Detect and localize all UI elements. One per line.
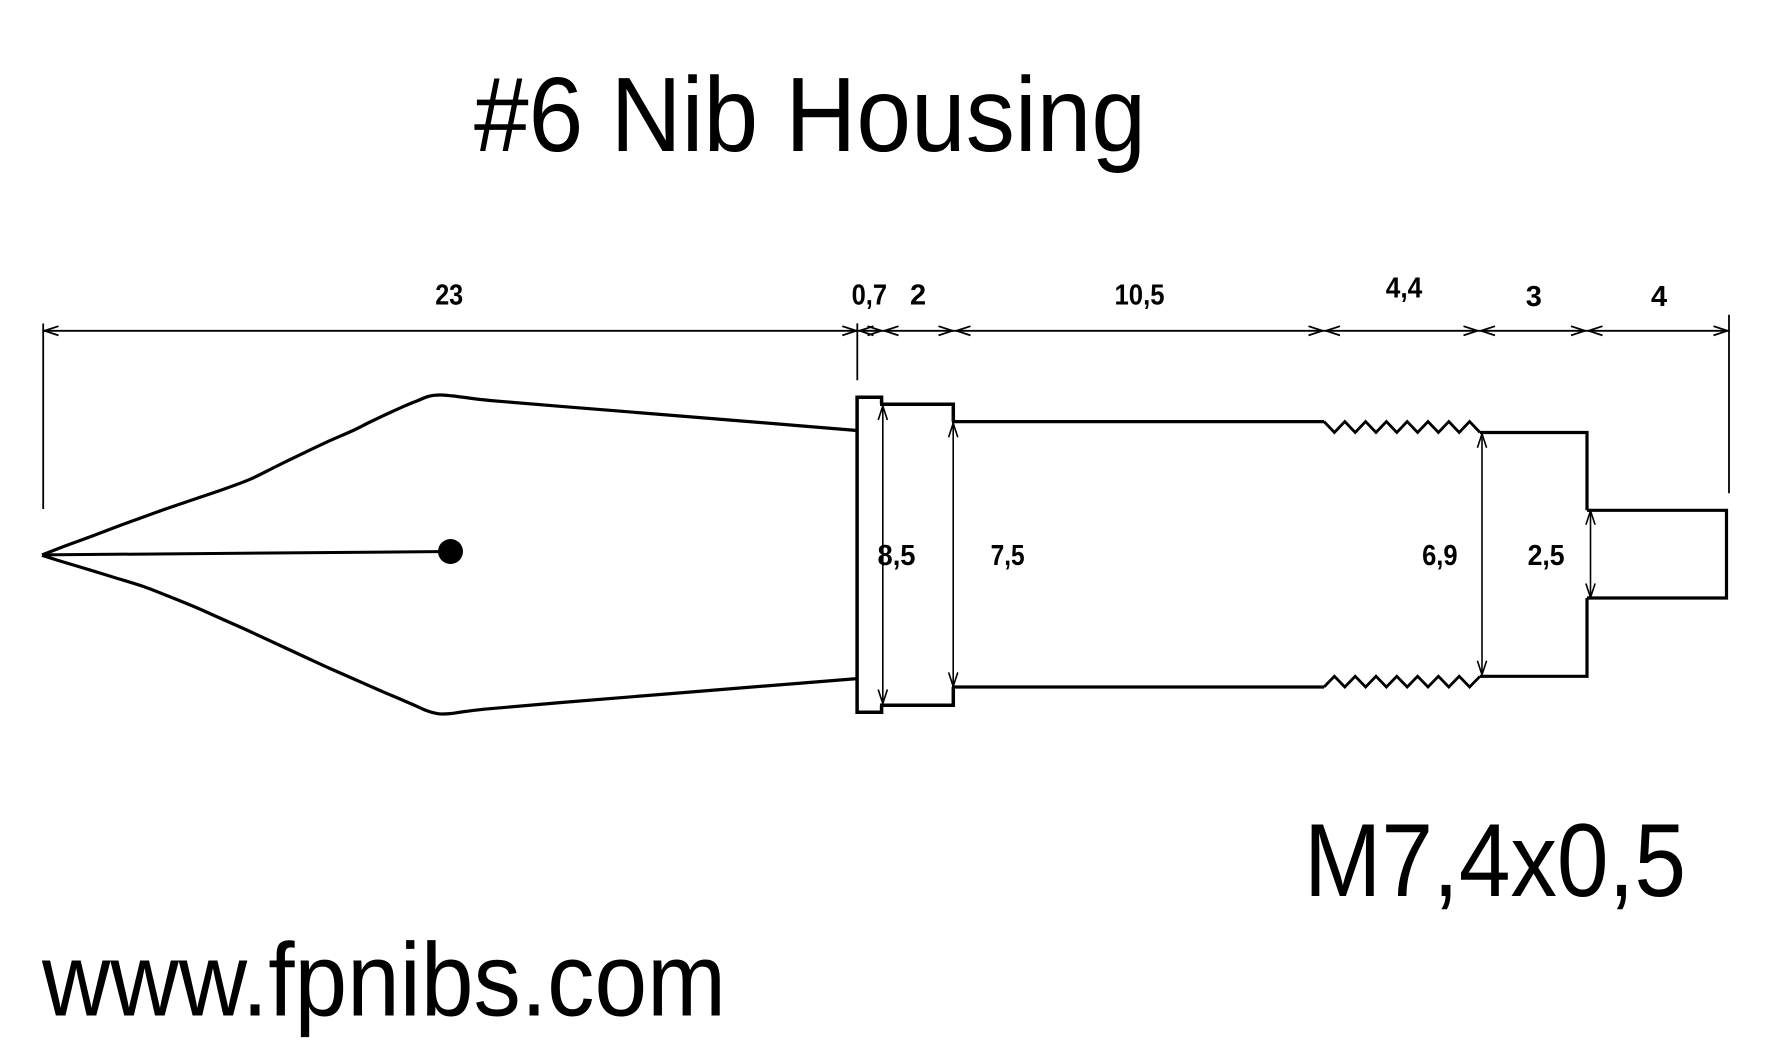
svg-text:www.fpnibs.com: www.fpnibs.com (41, 923, 726, 1039)
svg-text:6,9: 6,9 (1422, 540, 1458, 572)
svg-text:7,5: 7,5 (991, 540, 1025, 572)
svg-text:4,4: 4,4 (1386, 273, 1423, 305)
svg-text:2,5: 2,5 (1528, 540, 1565, 572)
svg-text:4: 4 (1651, 281, 1667, 313)
svg-text:#6 Nib Housing: #6 Nib Housing (474, 56, 1146, 174)
svg-text:2: 2 (910, 280, 926, 312)
svg-text:M7,4x0,5: M7,4x0,5 (1304, 803, 1686, 919)
svg-text:8,5: 8,5 (878, 540, 916, 572)
svg-text:0,7: 0,7 (852, 280, 888, 312)
svg-text:23: 23 (435, 280, 463, 312)
svg-text:3: 3 (1526, 281, 1542, 313)
svg-text:10,5: 10,5 (1115, 280, 1165, 312)
